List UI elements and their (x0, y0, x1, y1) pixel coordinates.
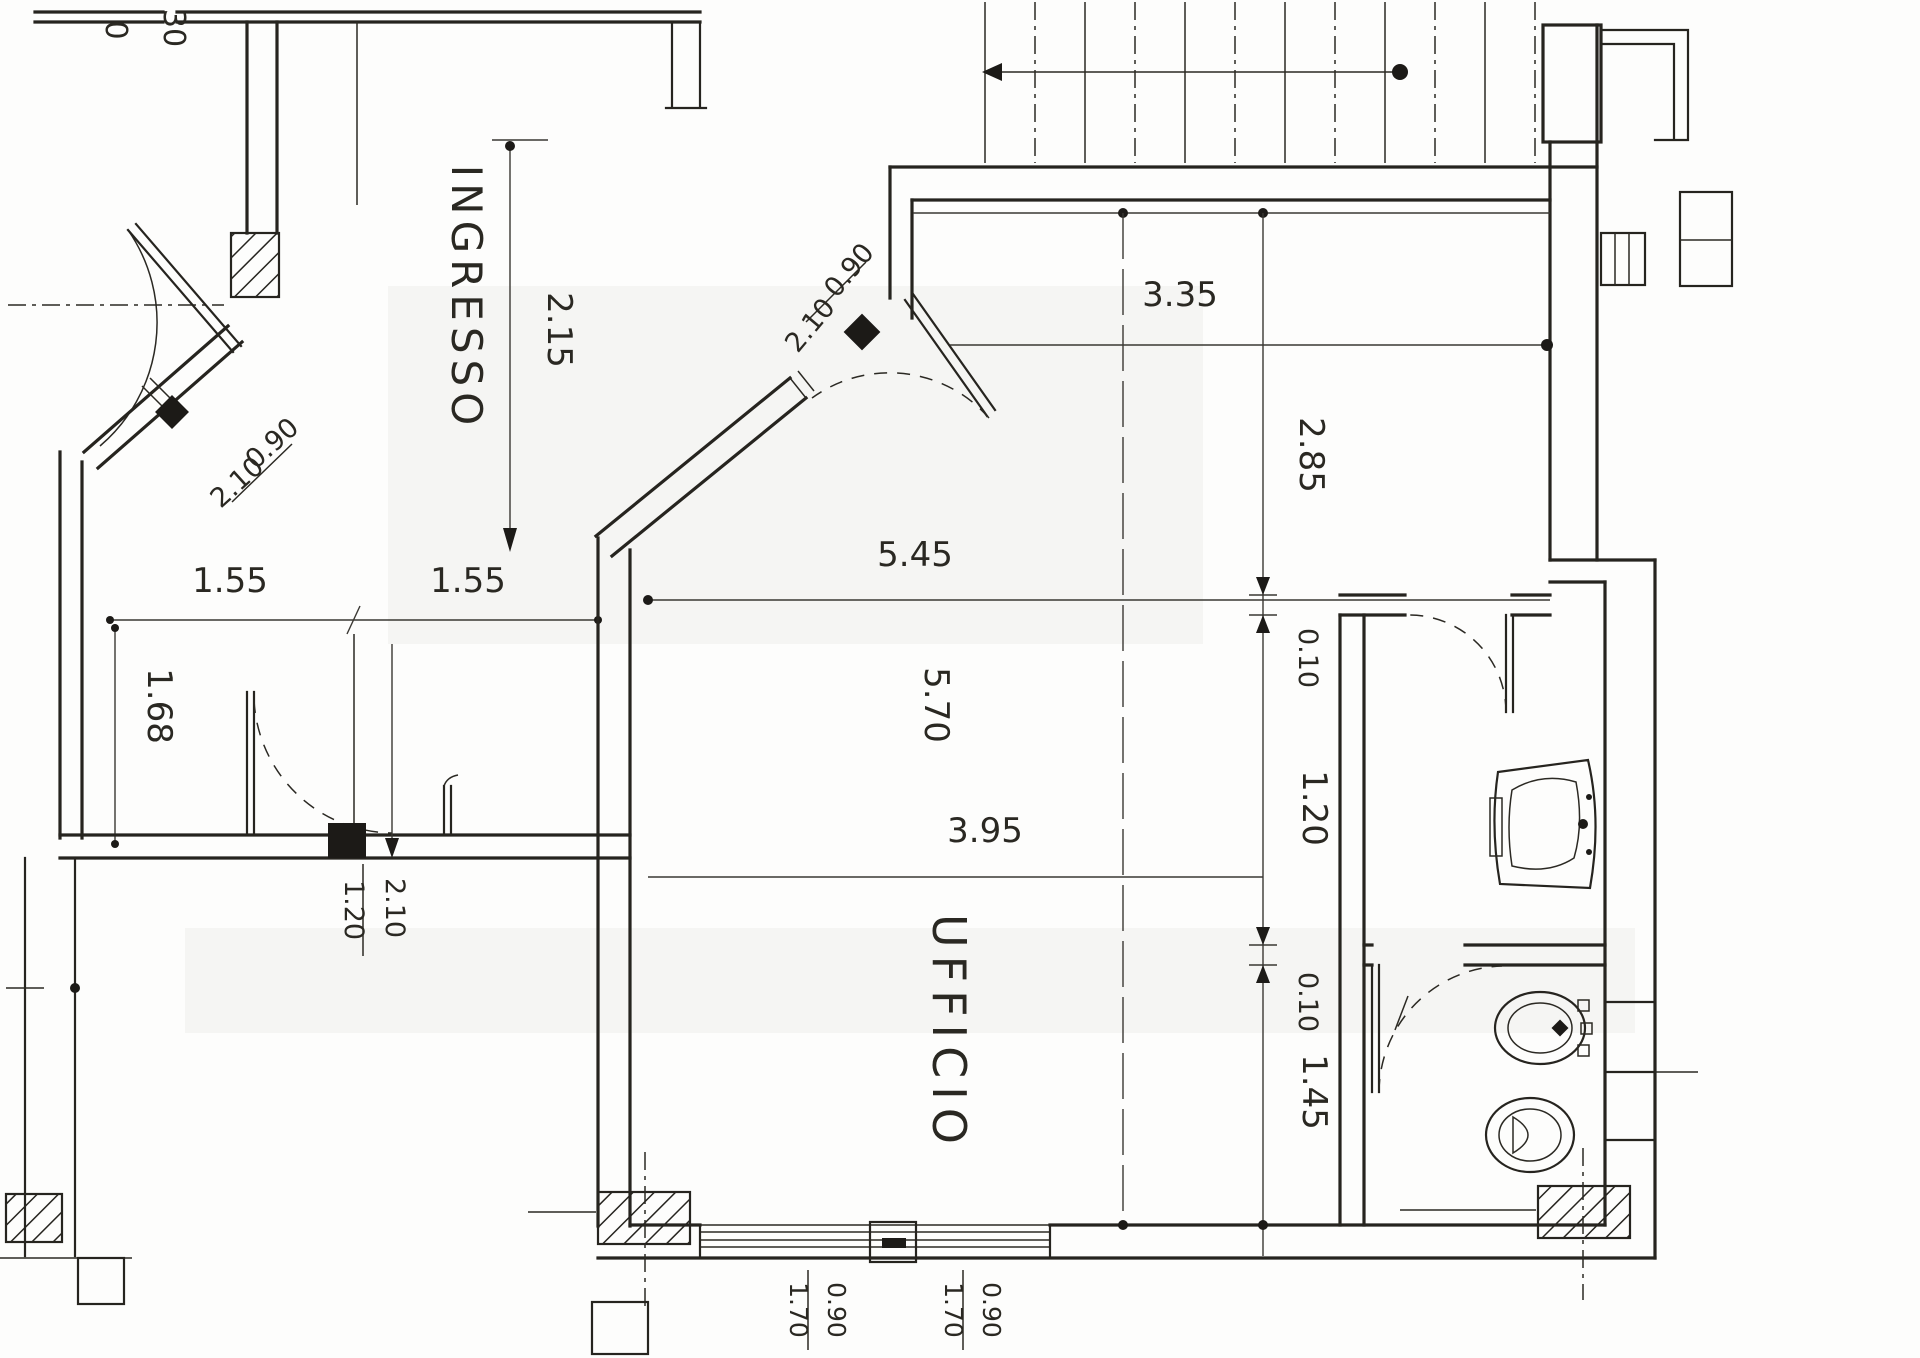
masonry-pier (1538, 1186, 1630, 1238)
masonry-pier (6, 1194, 62, 1242)
stairs (982, 2, 1535, 163)
column-outline (78, 1258, 124, 1304)
internal-door-height: 2.10 (379, 878, 410, 938)
internal-door-swing (254, 700, 392, 833)
stair-pier (1543, 25, 1601, 142)
antibagno-depth: 1.20 (1294, 770, 1334, 846)
ufficio-label: UFFICIO (922, 914, 976, 1152)
door-hinge-block (155, 395, 189, 429)
fragment-a: 0 (98, 20, 133, 39)
internal-door-width: 1.20 (338, 880, 369, 940)
office-width: 5.45 (877, 535, 953, 575)
neighbor-unit-walls (8, 12, 706, 305)
window-b-height: 1.70 (939, 1282, 968, 1338)
bathrooms (1340, 595, 1605, 1225)
lower-left-walls (0, 858, 132, 1304)
faucet-dot (1578, 819, 1588, 829)
window-glazing (700, 1225, 1050, 1247)
chain-wall-a: 0.10 (1292, 628, 1323, 688)
masonry-pier (598, 1192, 690, 1244)
office-lower-width: 3.95 (947, 811, 1023, 851)
sink (1490, 760, 1596, 888)
external-box (1680, 192, 1732, 286)
corridor-seg-b: 1.55 (430, 561, 506, 601)
entry-length: 2.15 (539, 292, 579, 368)
chain-wall-b: 0.10 (1292, 972, 1323, 1032)
window-a-width: 0.90 (822, 1282, 851, 1338)
wall-column (328, 823, 366, 858)
floorplan-drawing: 0.90 2.10 INGRESSO 2.15 1.55 1.55 1.68 (0, 0, 1920, 1358)
corridor-seg-a: 1.55 (192, 561, 268, 601)
window-b-width: 0.90 (977, 1282, 1006, 1338)
bottom-wall (528, 1148, 1655, 1354)
floorplan-page: 0.90 2.10 INGRESSO 2.15 1.55 1.55 1.68 (0, 0, 1920, 1358)
bagno-depth: 1.45 (1294, 1054, 1334, 1130)
top-width: 3.35 (1142, 275, 1218, 315)
edge-text-fragments: 0 30 (98, 9, 191, 47)
bidet (1486, 1098, 1574, 1172)
fragment-b: 30 (156, 9, 191, 47)
upper-height: 2.85 (1291, 417, 1331, 493)
corridor-depth: 1.68 (139, 668, 179, 744)
office-depth: 5.70 (916, 667, 956, 743)
masonry-pier (231, 233, 279, 297)
antibagno-door-swing (1409, 615, 1506, 712)
door-leaf (128, 224, 241, 352)
ingresso-label: INGRESSO (442, 165, 491, 431)
scan-shade-band-2 (185, 928, 1635, 1033)
internal-door-leaf (247, 692, 254, 835)
window-labels: 1.70 0.90 1.70 0.90 (784, 1270, 1006, 1350)
right-walls (1543, 25, 1732, 1258)
radiator (1601, 233, 1645, 285)
antibagno-door-leaf (1506, 615, 1513, 712)
column-outline (592, 1302, 648, 1354)
window-a-height: 1.70 (784, 1282, 813, 1338)
